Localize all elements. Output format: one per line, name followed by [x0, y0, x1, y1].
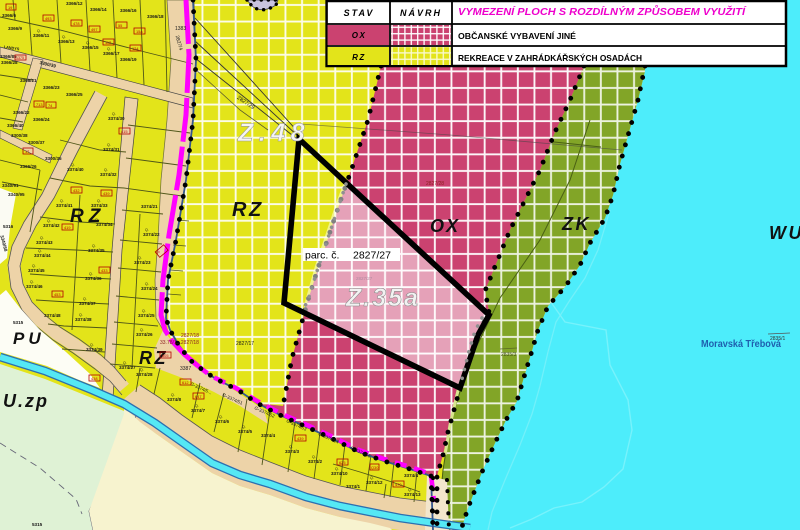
svg-text:3374/7: 3374/7	[191, 408, 205, 413]
svg-text:3374/13: 3374/13	[404, 492, 421, 497]
svg-text:3374/23: 3374/23	[134, 260, 151, 265]
svg-text:Q.: Q.	[142, 309, 146, 313]
svg-text:Q.: Q.	[62, 35, 66, 39]
svg-text:3300/38: 3300/38	[11, 133, 28, 138]
svg-text:3374/35: 3374/35	[88, 248, 105, 253]
svg-text:Q.: Q.	[104, 168, 108, 172]
svg-text:Q.: Q.	[107, 143, 111, 147]
svg-text:3366/15: 3366/15	[82, 45, 99, 50]
svg-text:3374/1: 3374/1	[346, 484, 360, 489]
svg-text:3374/12: 3374/12	[366, 480, 383, 485]
svg-text:3366/21: 3366/21	[20, 78, 37, 83]
svg-text:3374/30: 3374/30	[108, 116, 125, 121]
svg-text:Q.: Q.	[107, 47, 111, 51]
svg-text:3366/18: 3366/18	[147, 14, 164, 19]
svg-text:625: 625	[339, 460, 346, 465]
svg-text:3366/19: 3366/19	[120, 57, 137, 62]
svg-text:605: 605	[162, 353, 169, 358]
svg-text:3340/91: 3340/91	[2, 183, 19, 188]
svg-text:5315: 5315	[13, 320, 24, 325]
svg-text:Q.: Q.	[145, 228, 149, 232]
svg-text:3374/22: 3374/22	[143, 232, 160, 237]
svg-text:3374/32: 3374/32	[100, 172, 117, 177]
svg-text:55: 55	[118, 23, 122, 28]
svg-text:Q.: Q.	[90, 343, 94, 347]
svg-text:Q.: Q.	[83, 297, 87, 301]
svg-text:ZK: ZK	[561, 214, 591, 234]
svg-text:VYMEZENÍ PLOCH S ROZDÍLNÝM ZPŮ: VYMEZENÍ PLOCH S ROZDÍLNÝM ZPŮSOBEM VYUŽ…	[458, 4, 747, 18]
svg-text:3374/39: 3374/39	[86, 347, 103, 352]
svg-text:453: 453	[54, 292, 61, 297]
svg-text:Q.: Q.	[140, 368, 144, 372]
svg-text:3374/3: 3374/3	[285, 449, 299, 454]
svg-text:Q.: Q.	[30, 280, 34, 284]
svg-text:Q.: Q.	[112, 112, 116, 116]
svg-text:Q.: Q.	[408, 488, 412, 492]
svg-text:3374/41: 3374/41	[56, 203, 73, 208]
svg-text:5316: 5316	[3, 224, 14, 229]
svg-text:3366/14: 3366/14	[90, 7, 107, 12]
svg-text:433: 433	[101, 268, 108, 273]
svg-text:3366/17: 3366/17	[103, 51, 120, 56]
svg-text:3366/11: 3366/11	[33, 33, 50, 38]
svg-text:OX: OX	[430, 216, 460, 236]
svg-text:647: 647	[195, 394, 202, 399]
svg-text:112: 112	[105, 40, 111, 45]
svg-text:3374/31: 3374/31	[103, 147, 120, 152]
svg-text:Q.: Q.	[38, 249, 42, 253]
svg-text:3366/12: 3366/12	[66, 1, 83, 6]
svg-text:3374/37: 3374/37	[79, 301, 96, 306]
svg-text:3366/85: 3366/85	[0, 54, 17, 59]
svg-text:3374/44: 3374/44	[34, 253, 51, 258]
svg-text:Q.: Q.	[140, 328, 144, 332]
svg-text:439: 439	[297, 436, 304, 441]
svg-text:RZ: RZ	[232, 199, 264, 221]
svg-text:3366/23: 3366/23	[43, 85, 60, 90]
svg-text:3366/9: 3366/9	[8, 26, 22, 31]
svg-text:3374/25: 3374/25	[138, 313, 155, 318]
svg-text:2827/18: 2827/18	[181, 333, 199, 339]
svg-text:5315: 5315	[32, 522, 43, 527]
svg-text:17: 17	[25, 149, 29, 154]
svg-text:3374/33: 3374/33	[91, 203, 108, 208]
svg-text:Q.: Q.	[195, 404, 199, 408]
svg-text:3300/37: 3300/37	[28, 140, 45, 145]
svg-text:OBČANSKÉ VYBAVENÍ JINÉ: OBČANSKÉ VYBAVENÍ JINÉ	[458, 30, 576, 41]
svg-text:415: 415	[121, 129, 128, 134]
svg-text:Q30: Q30	[371, 465, 379, 470]
svg-text:2827/28: 2827/28	[426, 181, 444, 187]
svg-text:713: 713	[36, 102, 43, 107]
svg-text:Q.: Q.	[37, 29, 41, 33]
svg-text:3300/35: 3300/35	[45, 156, 62, 161]
svg-text:432: 432	[73, 188, 80, 193]
svg-text:PU: PU	[13, 329, 45, 348]
svg-text:3374/21: 3374/21	[141, 204, 158, 209]
svg-text:3366/6: 3366/6	[2, 13, 16, 18]
svg-text:124: 124	[132, 46, 139, 51]
svg-text:438: 438	[91, 376, 98, 381]
svg-text:2827/27: 2827/27	[353, 250, 391, 262]
svg-text:3374/10: 3374/10	[331, 471, 348, 476]
svg-text:3366/24: 3366/24	[33, 117, 50, 122]
svg-text:Q.: Q.	[335, 467, 339, 471]
svg-text:3374/36: 3374/36	[85, 276, 102, 281]
svg-text:3374/27: 3374/27	[119, 365, 136, 370]
svg-text:33.78/1...2827/18: 33.78/1...2827/18	[160, 340, 199, 346]
svg-text:478: 478	[73, 21, 80, 26]
svg-text:439: 439	[103, 191, 110, 196]
svg-text:3374/34: 3374/34	[96, 222, 113, 227]
svg-text:3374/6: 3374/6	[215, 419, 229, 424]
svg-text:OX: OX	[352, 31, 367, 40]
svg-text:3340/95: 3340/95	[8, 192, 25, 197]
svg-text:Z.48: Z.48	[237, 119, 310, 147]
svg-text:493: 493	[45, 16, 52, 21]
svg-text:Q.: Q.	[138, 256, 142, 260]
svg-text:Q.: Q.	[219, 415, 223, 419]
svg-text:Q.: Q.	[47, 219, 51, 223]
svg-text:3366/22: 3366/22	[13, 110, 30, 115]
svg-text:Q.: Q.	[86, 41, 90, 45]
svg-text:3366/26: 3366/26	[20, 164, 37, 169]
svg-text:3374/24: 3374/24	[141, 286, 158, 291]
svg-text:3374/46: 3374/46	[26, 284, 43, 289]
svg-text:U.zp: U.zp	[3, 391, 49, 411]
svg-text:RZ: RZ	[352, 53, 366, 62]
svg-text:3374/8: 3374/8	[167, 397, 181, 402]
svg-text:Q.: Q.	[370, 476, 374, 480]
svg-text:Q.: Q.	[123, 361, 127, 365]
svg-text:Q.: Q.	[145, 282, 149, 286]
svg-text:2835/1: 2835/1	[770, 336, 786, 342]
svg-text:497: 497	[91, 27, 98, 32]
svg-text:3374/45: 3374/45	[28, 268, 45, 273]
svg-text:STAV: STAV	[344, 8, 375, 18]
svg-text:2835/3: 2835/3	[501, 352, 517, 358]
svg-text:REKREACE V ZAHRÁDKÁŘSKÝCH OSAD: REKREACE V ZAHRÁDKÁŘSKÝCH OSADÁCH	[458, 52, 642, 63]
svg-text:3374/26: 3374/26	[136, 332, 153, 337]
svg-text:Q.: Q.	[92, 244, 96, 248]
svg-text:3366/16: 3366/16	[120, 8, 137, 13]
svg-text:Q.: Q.	[97, 199, 101, 203]
svg-text:3387: 3387	[180, 366, 191, 372]
svg-text:419: 419	[64, 225, 71, 230]
svg-text:3374/43: 3374/43	[36, 240, 53, 245]
svg-text:612: 612	[182, 380, 189, 385]
svg-text:1375: 1375	[16, 56, 24, 60]
svg-text:2827/17: 2827/17	[236, 341, 254, 347]
svg-text:2827/27: 2827/27	[356, 276, 373, 281]
svg-text:Q.: Q.	[312, 455, 316, 459]
svg-text:Q.: Q.	[60, 199, 64, 203]
svg-text:3374/5: 3374/5	[238, 429, 252, 434]
svg-text:3374/40: 3374/40	[67, 167, 84, 172]
svg-text:parc. č.: parc. č.	[305, 250, 339, 262]
svg-text:3374/28: 3374/28	[136, 372, 153, 377]
svg-text:Z.35a: Z.35a	[345, 284, 420, 312]
svg-text:Q.: Q.	[32, 264, 36, 268]
svg-text:3374/48: 3374/48	[44, 313, 61, 318]
svg-text:3374/4: 3374/4	[261, 433, 275, 438]
svg-text:Q.: Q.	[95, 218, 99, 222]
svg-text:Q.: Q.	[242, 425, 246, 429]
svg-text:15a: 15a	[136, 29, 143, 34]
svg-text:3366/13: 3366/13	[58, 39, 75, 44]
svg-text:Q.: Q.	[289, 445, 293, 449]
svg-text:3366/40: 3366/40	[7, 123, 24, 128]
svg-text:Q.: Q.	[171, 393, 175, 397]
svg-text:WU: WU	[769, 223, 800, 243]
svg-text:Q.: Q.	[40, 236, 44, 240]
svg-text:NÁVRH: NÁVRH	[400, 8, 442, 18]
svg-text:3374/42: 3374/42	[43, 223, 60, 228]
svg-text:1383: 1383	[175, 26, 186, 32]
svg-text:3366/28: 3366/28	[1, 60, 18, 65]
svg-text:Q.: Q.	[89, 272, 93, 276]
svg-text:Q.: Q.	[79, 313, 83, 317]
svg-text:19: 19	[8, 5, 12, 10]
svg-text:3366/25: 3366/25	[66, 92, 83, 97]
svg-text:Q.: Q.	[71, 163, 75, 167]
svg-text:3374/2: 3374/2	[308, 459, 322, 464]
svg-text:3374/38: 3374/38	[75, 317, 92, 322]
svg-text:470: 470	[395, 482, 402, 487]
svg-text:3374/4: 3374/4	[404, 473, 418, 478]
